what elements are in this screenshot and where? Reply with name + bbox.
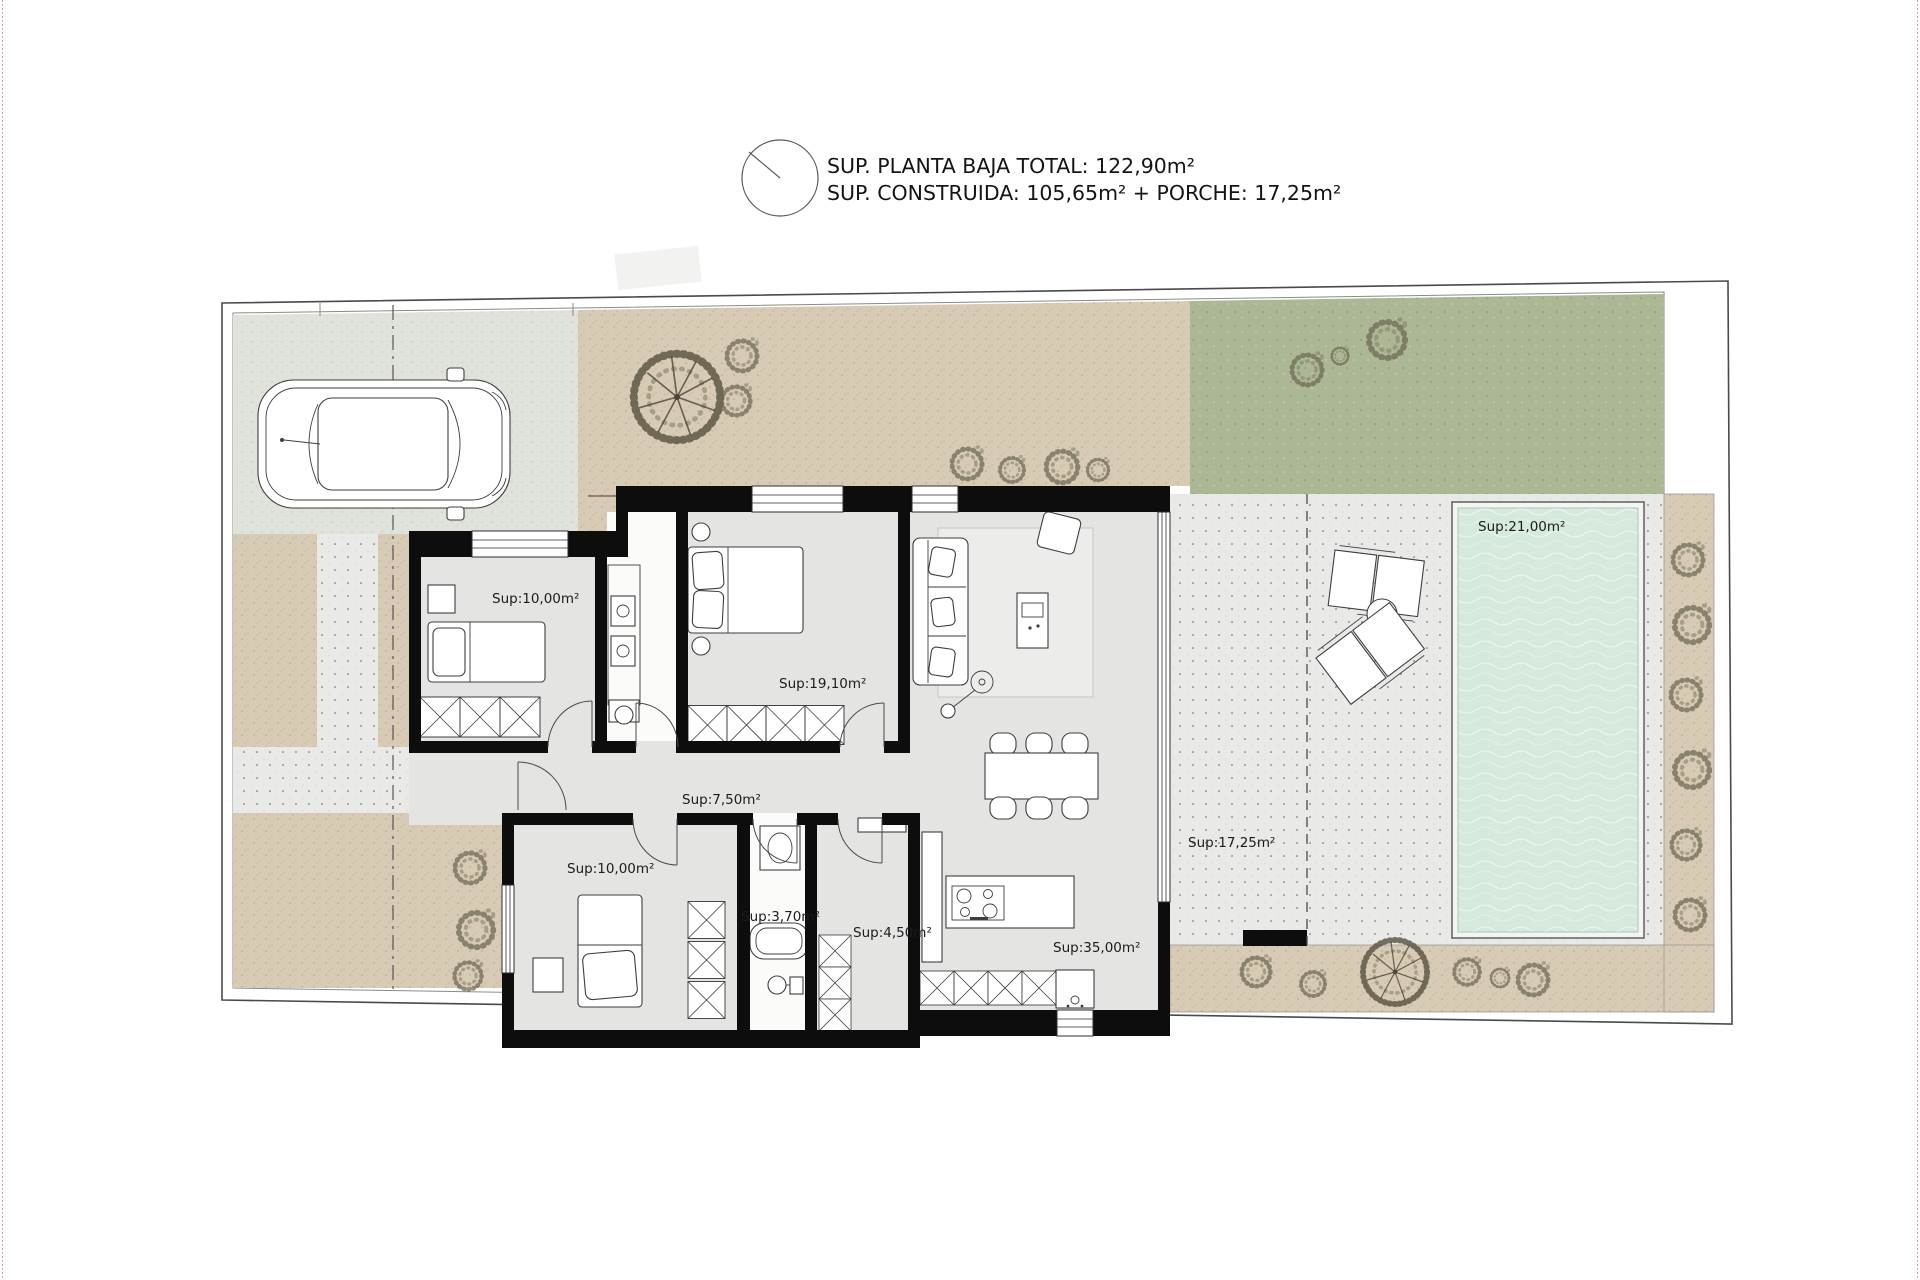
garden-path xyxy=(317,534,378,747)
window-living-north xyxy=(912,486,958,512)
print-artifact xyxy=(614,246,701,291)
plan-title-line1: SUP. PLANTA BAJA TOTAL: 122,90m² xyxy=(827,154,1195,178)
window-kitchen-south xyxy=(1057,1010,1093,1036)
room-area-label-living: Sup:35,00m² xyxy=(1053,940,1140,956)
garden-left xyxy=(233,534,317,747)
dining-set xyxy=(985,733,1098,819)
plan-title-line2: SUP. CONSTRUIDA: 105,65m² + PORCHE: 17,2… xyxy=(827,181,1341,205)
room-area-label-porch: Sup:17,25m² xyxy=(1188,835,1275,851)
room-area-label-hallway: Sup:7,50m² xyxy=(682,792,761,808)
garden-bottom-left xyxy=(233,813,502,988)
plan-title: SUP. PLANTA BAJA TOTAL: 122,90m² SUP. CO… xyxy=(827,154,1341,205)
room-area-label-bedroom-2: Sup:10,00m² xyxy=(567,861,654,877)
glass-wall-living-east xyxy=(1158,512,1170,902)
kitchen-sink xyxy=(1056,970,1094,1008)
car xyxy=(258,368,510,520)
hallway-floor xyxy=(409,741,920,825)
window-master xyxy=(752,486,843,512)
kitchen-tall-units xyxy=(922,832,942,962)
north-indicator-icon xyxy=(742,140,818,216)
lawn xyxy=(1190,294,1664,494)
pool: Sup:21,00m² xyxy=(1452,502,1644,938)
tv-console xyxy=(1017,593,1048,648)
site-plan-svg: Sup:21,00m² xyxy=(0,0,1920,1280)
window-bedroom-1 xyxy=(472,531,568,557)
sofa xyxy=(913,538,968,685)
kitchen-island xyxy=(946,876,1074,928)
window-bedroom-2-west xyxy=(502,885,514,973)
room-area-label-laundry: Sup:4,50m² xyxy=(853,925,932,941)
porch-wall xyxy=(1243,930,1307,946)
room-area-label-pool: Sup:21,00m² xyxy=(1478,519,1565,535)
room-area-label-master: Sup:19,10m² xyxy=(779,676,866,692)
room-area-label-bathroom-2: Sup:3,70m² xyxy=(741,909,820,925)
room-area-label-bedroom-1: Sup:10,00m² xyxy=(492,591,579,607)
floor-plan-page: Sup:21,00m² xyxy=(0,0,1920,1280)
